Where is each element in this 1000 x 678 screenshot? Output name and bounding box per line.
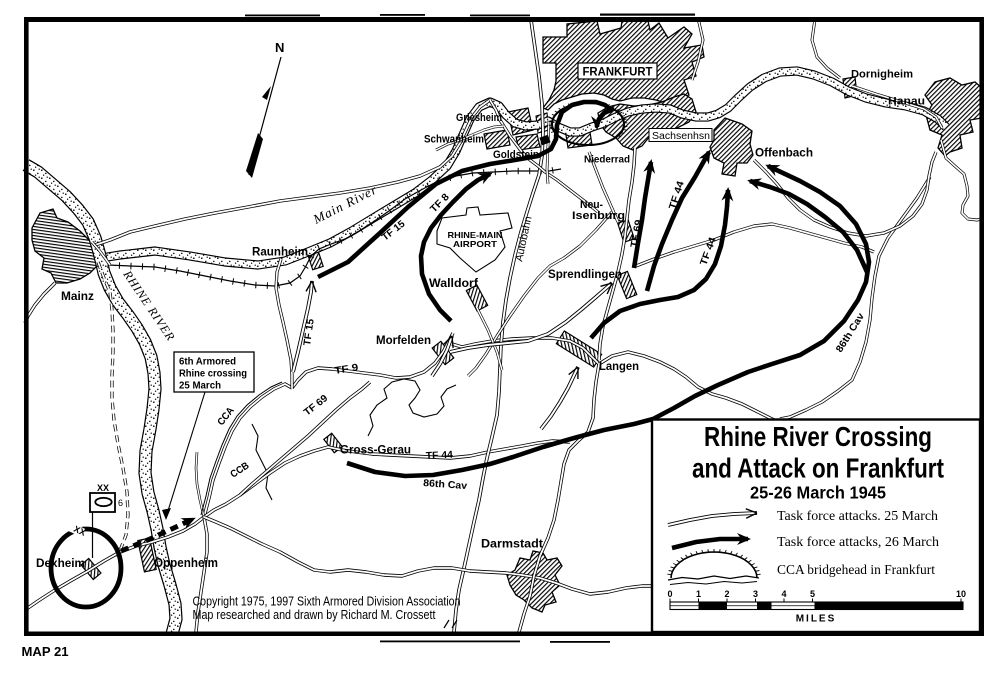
- svg-text:N: N: [275, 40, 284, 55]
- svg-text:Sachsenhsn: Sachsenhsn: [652, 131, 710, 142]
- svg-text:Rhine crossing: Rhine crossing: [179, 369, 247, 380]
- svg-text:Mainz: Mainz: [61, 289, 94, 303]
- svg-text:Sprendlingen: Sprendlingen: [548, 267, 622, 281]
- svg-text:5: 5: [810, 589, 815, 599]
- svg-text:Task force attacks. 25 March: Task force attacks. 25 March: [777, 508, 938, 523]
- svg-text:6: 6: [118, 498, 123, 508]
- svg-text:Walldorf: Walldorf: [429, 278, 478, 290]
- svg-text:Darmstadt: Darmstadt: [481, 539, 543, 551]
- svg-text:CCA bridgehead in Frankfurt: CCA bridgehead in Frankfurt: [777, 562, 935, 577]
- svg-text:and Attack on Frankfurt: and Attack on Frankfurt: [692, 453, 944, 484]
- svg-text:1: 1: [696, 589, 701, 599]
- svg-text:6th Armored: 6th Armored: [179, 357, 236, 368]
- svg-text:FRANKFURT: FRANKFURT: [583, 67, 653, 79]
- svg-text:25 March: 25 March: [179, 381, 221, 392]
- svg-text:XX: XX: [97, 483, 109, 493]
- svg-text:Dornigheim: Dornigheim: [851, 69, 913, 81]
- svg-text:Gross-Gerau: Gross-Gerau: [340, 443, 411, 457]
- svg-text:Niederrad: Niederrad: [584, 155, 630, 166]
- svg-text:AIRPORT: AIRPORT: [453, 239, 498, 249]
- svg-text:25-26 March 1945: 25-26 March 1945: [750, 483, 886, 503]
- svg-text:0: 0: [667, 589, 672, 599]
- svg-text:Goldstein: Goldstein: [493, 149, 539, 161]
- svg-text:Hanau: Hanau: [888, 96, 925, 108]
- svg-text:Isenburg: Isenburg: [572, 210, 625, 222]
- svg-text:3: 3: [753, 589, 758, 599]
- svg-text:4: 4: [781, 589, 786, 599]
- svg-text:Morfelden: Morfelden: [376, 333, 431, 347]
- svg-text:Dexheim: Dexheim: [36, 558, 85, 570]
- svg-text:Schwanheim: Schwanheim: [424, 134, 484, 146]
- svg-text:Oppenheim: Oppenheim: [154, 556, 218, 570]
- svg-text:TF 44: TF 44: [426, 450, 454, 462]
- svg-text:Langen: Langen: [599, 359, 639, 373]
- svg-text:Map researched and drawn by Ri: Map researched and drawn by Richard M. C…: [193, 608, 436, 622]
- svg-text:Raunheim: Raunheim: [252, 245, 308, 259]
- svg-text:Rhine River Crossing: Rhine River Crossing: [704, 421, 932, 452]
- svg-text:Task force attacks, 26 March: Task force attacks, 26 March: [777, 534, 939, 549]
- svg-text:2: 2: [724, 589, 729, 599]
- svg-text:Offenbach: Offenbach: [755, 146, 813, 160]
- svg-text:10: 10: [956, 589, 966, 599]
- svg-text:Copyright 1975, 1997 Sixth Arm: Copyright 1975, 1997 Sixth Armored Divis…: [193, 594, 461, 608]
- svg-text:MILES: MILES: [796, 614, 837, 625]
- svg-text:Griesheim: Griesheim: [456, 112, 502, 124]
- svg-text:MAP 21: MAP 21: [22, 644, 69, 659]
